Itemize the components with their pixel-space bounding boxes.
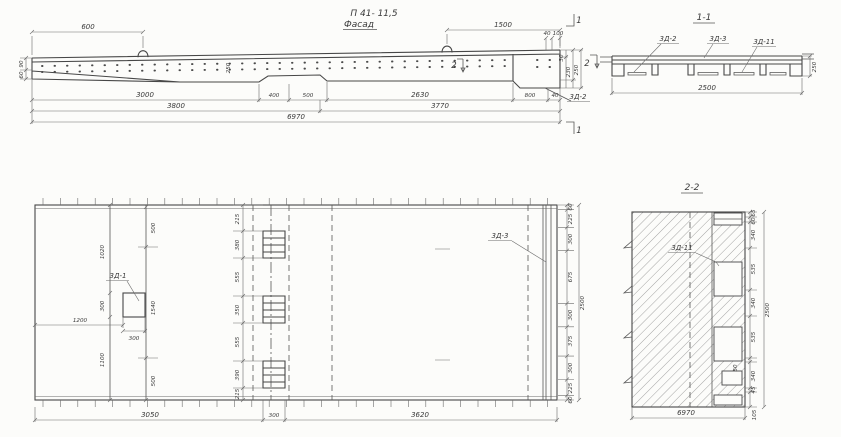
plan-right-7: 225: [568, 382, 574, 393]
plan-right-2: 300: [568, 233, 574, 244]
dim-800: 800: [525, 93, 536, 99]
facade-view: П 41- 11,5 Фасад 600 1500 40 100 90 60 2…: [19, 9, 599, 136]
plan-outline: [35, 205, 557, 400]
embed-plate-3d1: [123, 293, 145, 317]
plan-edge-ticks-top: [43, 198, 548, 205]
leader-3d3-plan: [512, 241, 546, 262]
dim-230: 230: [566, 66, 572, 77]
leader-3d1: [127, 281, 139, 301]
sec22-right-0: 65: [751, 209, 757, 217]
section11-label-3d11: 3Д-11: [753, 38, 774, 46]
drawing-canvas: П 41- 11,5 Фасад 600 1500 40 100 90 60 2…: [0, 0, 841, 437]
dim-600: 600: [81, 23, 95, 31]
facade-label-3d2: 3Д-2: [570, 93, 587, 101]
section-1-flag-top: [566, 14, 574, 26]
sec22-right-7: 340: [751, 370, 757, 381]
dim-3000: 3000: [136, 91, 154, 99]
plan-right-5: 375: [568, 335, 574, 346]
hook-bars: [600, 54, 814, 62]
dim-300-w: 300: [129, 336, 140, 342]
section-1-mark-top: 1: [576, 16, 581, 26]
section-1-flag-bottom: [566, 122, 574, 134]
notch-2: [714, 262, 742, 296]
sec22-right-8: 45: [751, 386, 757, 394]
dim-300-sq: 300: [100, 300, 106, 311]
section-1-mark-bottom: 1: [576, 126, 581, 136]
plan-right-0: 60: [568, 203, 574, 211]
strip-dim-2: 555: [235, 271, 241, 282]
dim-40-top: 40: [543, 31, 551, 37]
section-2-2-title: 2-2: [685, 183, 700, 193]
rebar-dots-row-2: [42, 66, 508, 72]
dim-40: 40: [551, 93, 559, 99]
dim-100-top: 100: [553, 31, 564, 37]
notch-4: [722, 371, 742, 385]
leader-3d2: [634, 44, 661, 72]
dim-3620: 3620: [411, 411, 429, 419]
dim-300w-ticks: [121, 317, 147, 333]
dim-300-strip: 300: [269, 413, 280, 419]
dim-6970: 6970: [287, 113, 305, 121]
section-2-mark-right: 2: [584, 59, 589, 69]
dim-1100: 1100: [100, 352, 106, 367]
strip-dim-6: 215: [235, 388, 241, 399]
section11-label-3d3: 3Д-3: [710, 35, 727, 43]
section-2-flag-right: [590, 55, 599, 68]
sec22-right-4: 340: [751, 297, 757, 308]
dim-30: 30: [559, 54, 565, 62]
section-1-1-title: 1-1: [697, 13, 712, 23]
strip-dim-1: 380: [235, 239, 241, 250]
ribbed-slab-profile: [612, 56, 802, 76]
dim-40-100-ext: [544, 36, 562, 50]
dim-105: 105: [752, 409, 758, 420]
notch-5: [714, 395, 742, 405]
sec22-right-total: 2500: [765, 302, 771, 317]
dim-1540: 1540: [151, 300, 157, 315]
notch-3: [714, 327, 742, 361]
ladder-blocks: [263, 231, 285, 388]
dim-250: 250: [574, 64, 580, 75]
dim-2630: 2630: [411, 91, 429, 99]
dim-90: 90: [19, 60, 25, 68]
ladder-block-1: [263, 231, 285, 258]
dim-500: 500: [303, 93, 314, 99]
beam-outline: [32, 50, 560, 88]
dim-600-ext: [30, 30, 145, 55]
plan-right-total: 2500: [580, 295, 586, 310]
section22-label-3d11: 3Д-11: [671, 244, 692, 252]
drawing-title: П 41- 11,5: [350, 9, 398, 19]
dim-500-top: 500: [151, 222, 157, 233]
dim-1500: 1500: [494, 21, 512, 29]
break-marks: [624, 241, 632, 383]
plan-right-3: 675: [568, 271, 574, 282]
plan-bottom-ext: [35, 400, 557, 422]
plan-label-3d1: 3Д-1: [110, 272, 127, 280]
strip-dim-5: 390: [235, 369, 241, 380]
dim-1200: 1200: [73, 318, 88, 324]
dim-250-sec11: 250: [812, 61, 818, 72]
strip-dim-3: 350: [235, 304, 241, 315]
sec22-right-6: 50: [733, 364, 739, 372]
plan-right-8: 60: [568, 396, 574, 404]
dim-500-bot: 500: [151, 375, 157, 386]
ladder-block-3: [263, 361, 285, 388]
dim-3770: 3770: [431, 102, 449, 110]
section-1-1-view: 1-1 3Д-2 3Д-3 3Д-11 2500 250: [600, 13, 818, 95]
dim-6970-sec22: 6970: [677, 409, 695, 417]
section-2-mark-inner: 2: [451, 61, 456, 71]
dim-250-mid: 250: [226, 62, 232, 73]
dim-60: 60: [19, 71, 25, 79]
plan-right-4: 300: [568, 309, 574, 320]
dim-2500: 2500: [698, 84, 716, 92]
sec22-right-3: 535: [751, 263, 757, 274]
plan-edge-strip-3d3: [543, 205, 551, 400]
section11-label-3d2: 3Д-2: [660, 35, 677, 43]
plan-label-3d3: 3Д-3: [492, 232, 509, 240]
dim-400: 400: [269, 93, 280, 99]
dim-3050: 3050: [141, 411, 159, 419]
dim-3800: 3800: [167, 102, 185, 110]
section-2-flag-inner: [457, 59, 465, 72]
weld-dashes: [435, 249, 450, 360]
facade-view-title: Фасад: [344, 20, 374, 30]
strip-dim-4: 555: [235, 336, 241, 347]
plan-right-1: 225: [568, 213, 574, 224]
plan-edge-ticks-bottom: [43, 400, 548, 407]
dim-250-lines: [802, 54, 812, 78]
sec22-right-1: 60: [751, 217, 757, 225]
blueprint-sheet: П 41- 11,5 Фасад 600 1500 40 100 90 60 2…: [0, 0, 841, 437]
section-2-2-view: 2-2 3Д-11 65 60 340 535 340 535 50 340 4…: [624, 183, 771, 420]
sec22-right-2: 340: [751, 229, 757, 240]
ladder-block-2: [263, 296, 285, 323]
plan-view: 3Д-1 1020 300 1100 500 1540 500 1200 300…: [33, 198, 586, 422]
sec22-right-5: 535: [751, 331, 757, 342]
plan-right-6: 300: [568, 362, 574, 373]
dim-1020: 1020: [100, 244, 106, 259]
strip-dim-0: 215: [235, 213, 241, 224]
